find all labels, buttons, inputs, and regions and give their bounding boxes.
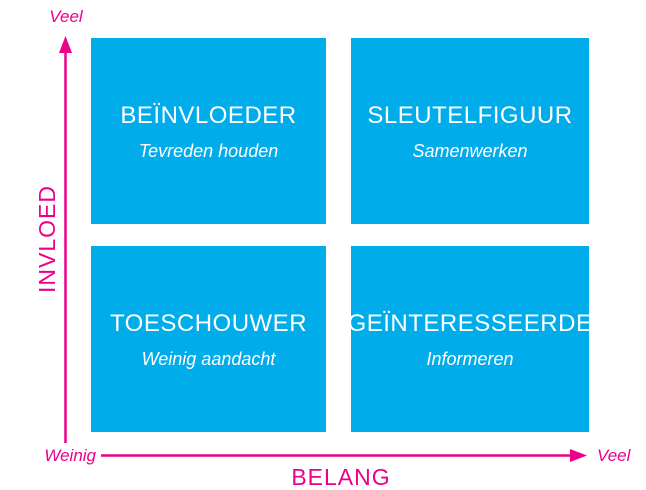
quadrant-sleutelfiguur: SLEUTELFIGUUR Samenwerken <box>351 38 589 224</box>
x-axis-max-label: Veel <box>597 446 645 466</box>
x-axis-arrowhead-icon <box>570 449 587 462</box>
quadrant-beinvloeder: BEÏNVLOEDER Tevreden houden <box>91 38 326 224</box>
x-axis-title: BELANG <box>241 463 441 490</box>
quadrant-toeschouwer: TOESCHOUWER Weinig aandacht <box>91 246 326 432</box>
quadrant-geinteresseerde: GEÏNTERESSEERDE Informeren <box>351 246 589 432</box>
quadrant-subtitle: Informeren <box>426 348 513 370</box>
quadrant-title: SLEUTELFIGUUR <box>367 101 572 131</box>
quadrant-title: GEÏNTERESSEERDE <box>348 309 593 339</box>
y-axis-max-label: Veel <box>40 7 92 27</box>
quadrant-title: BEÏNVLOEDER <box>120 101 296 131</box>
y-axis-arrowhead-icon <box>59 36 72 53</box>
x-axis-min-label: Weinig <box>34 446 96 466</box>
y-axis-title: INVLOED <box>33 169 61 309</box>
quadrant-title: TOESCHOUWER <box>110 309 307 339</box>
quadrant-subtitle: Samenwerken <box>412 140 527 162</box>
stakeholder-matrix: Veel INVLOED Weinig Veel BELANG BEÏNVLOE… <box>0 0 646 490</box>
quadrant-subtitle: Weinig aandacht <box>142 348 276 370</box>
quadrant-subtitle: Tevreden houden <box>139 140 278 162</box>
